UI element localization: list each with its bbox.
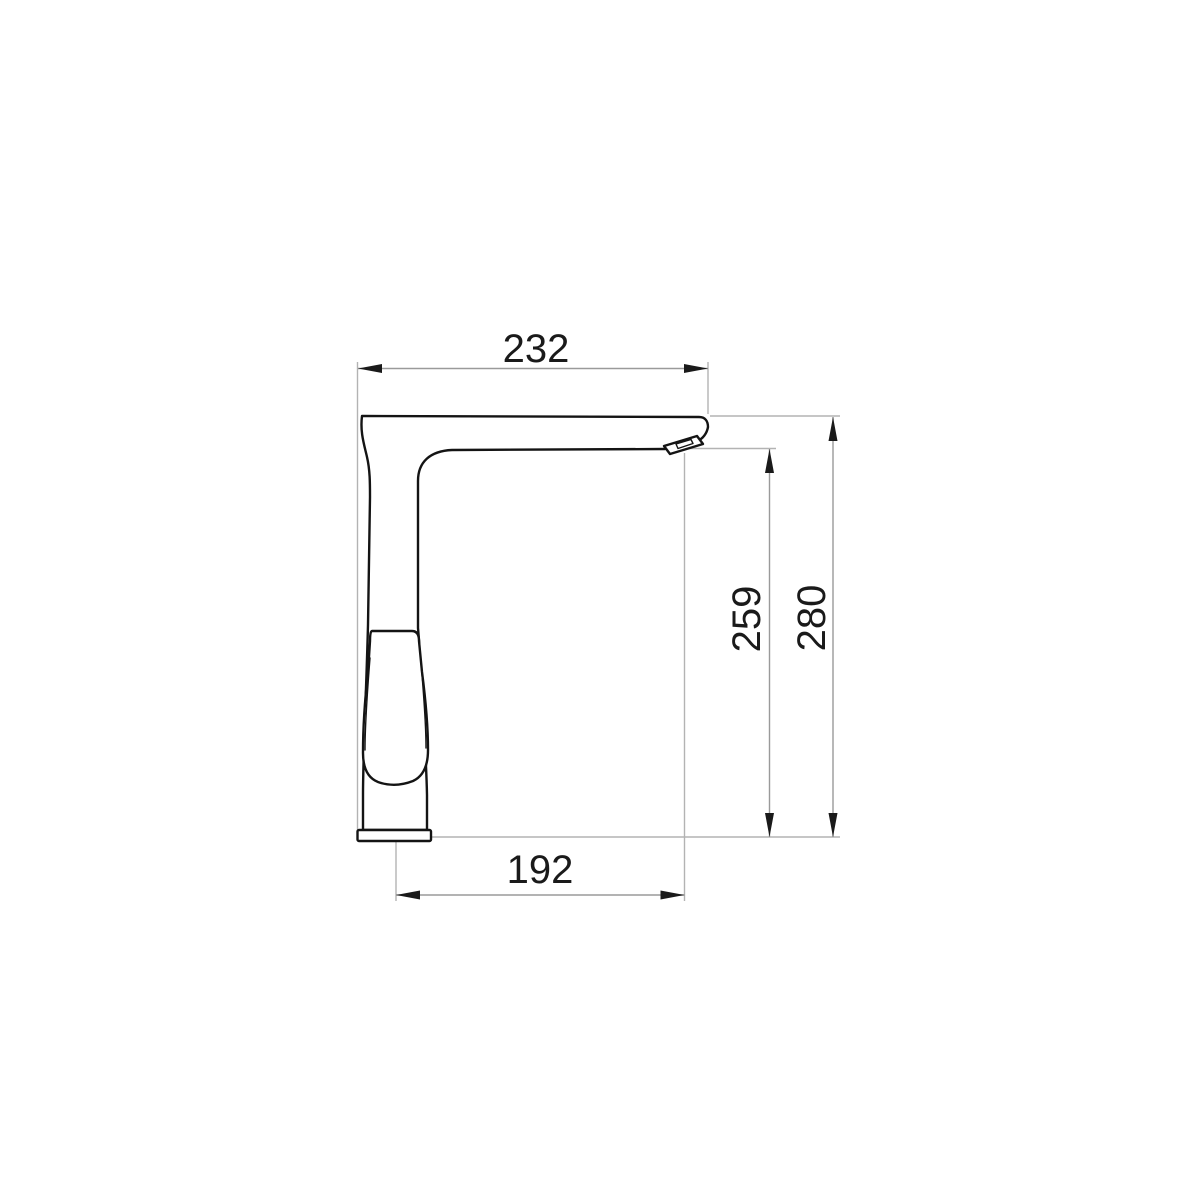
faucet-drawing xyxy=(358,416,709,841)
faucet-base-plate xyxy=(358,830,432,841)
dim-label-overall-height: 280 xyxy=(790,585,834,652)
faucet-technical-drawing: 232 259 280 192 xyxy=(0,0,1200,1200)
arrowhead-width-right-icon xyxy=(684,364,708,373)
arrowhead-height-top-icon xyxy=(829,417,838,441)
dimension-labels: 232 259 280 192 xyxy=(503,327,834,892)
arrowhead-spout-top-icon xyxy=(765,449,774,473)
faucet-handle xyxy=(363,631,428,785)
arrowhead-width-left-icon xyxy=(358,364,382,373)
arrowhead-reach-left-icon xyxy=(396,891,420,900)
arrowhead-height-bottom-icon xyxy=(829,813,838,837)
dim-label-spout-height: 259 xyxy=(725,586,769,653)
dim-label-spout-reach: 192 xyxy=(507,848,574,892)
arrowhead-spout-bottom-icon xyxy=(765,813,774,837)
arrowhead-reach-right-icon xyxy=(661,891,685,900)
drawing-canvas: 232 259 280 192 xyxy=(0,0,1200,1200)
dim-label-overall-width: 232 xyxy=(503,327,570,371)
